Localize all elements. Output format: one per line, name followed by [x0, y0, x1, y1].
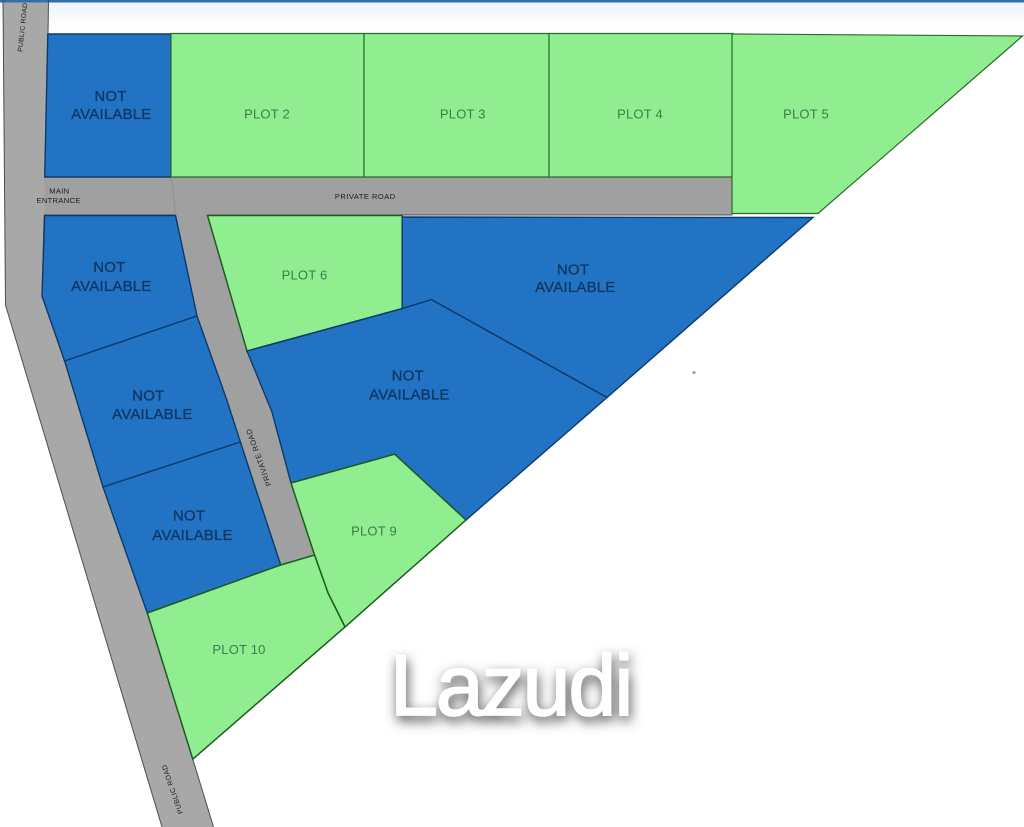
svg-text:AVAILABLE: AVAILABLE	[71, 106, 151, 123]
svg-text:PRIVATE ROAD: PRIVATE ROAD	[335, 192, 396, 201]
svg-text:NOT: NOT	[557, 262, 589, 279]
svg-text:AVAILABLE: AVAILABLE	[112, 406, 192, 423]
svg-text:PLOT 9: PLOT 9	[351, 524, 397, 539]
svg-text:AVAILABLE: AVAILABLE	[369, 387, 449, 404]
svg-text:ENTRANCE: ENTRANCE	[37, 196, 81, 205]
svg-text:Lazudi: Lazudi	[390, 638, 631, 734]
svg-text:NOT: NOT	[132, 387, 164, 404]
svg-text:PLOT 5: PLOT 5	[783, 107, 829, 122]
svg-text:AVAILABLE: AVAILABLE	[71, 278, 151, 295]
svg-text:NOT: NOT	[93, 259, 125, 276]
svg-text:AVAILABLE: AVAILABLE	[535, 279, 615, 296]
svg-text:PLOT 3: PLOT 3	[440, 107, 486, 122]
svg-text:NOT: NOT	[173, 508, 205, 525]
svg-text:MAIN: MAIN	[49, 187, 69, 196]
svg-text:PLOT 6: PLOT 6	[282, 268, 328, 283]
svg-text:NOT: NOT	[94, 88, 126, 105]
svg-text:PLOT 2: PLOT 2	[244, 107, 290, 122]
svg-text:AVAILABLE: AVAILABLE	[152, 527, 232, 544]
svg-text:PLOT 10: PLOT 10	[212, 642, 265, 657]
svg-text:NOT: NOT	[392, 368, 424, 385]
svg-text:PLOT 4: PLOT 4	[617, 107, 663, 122]
